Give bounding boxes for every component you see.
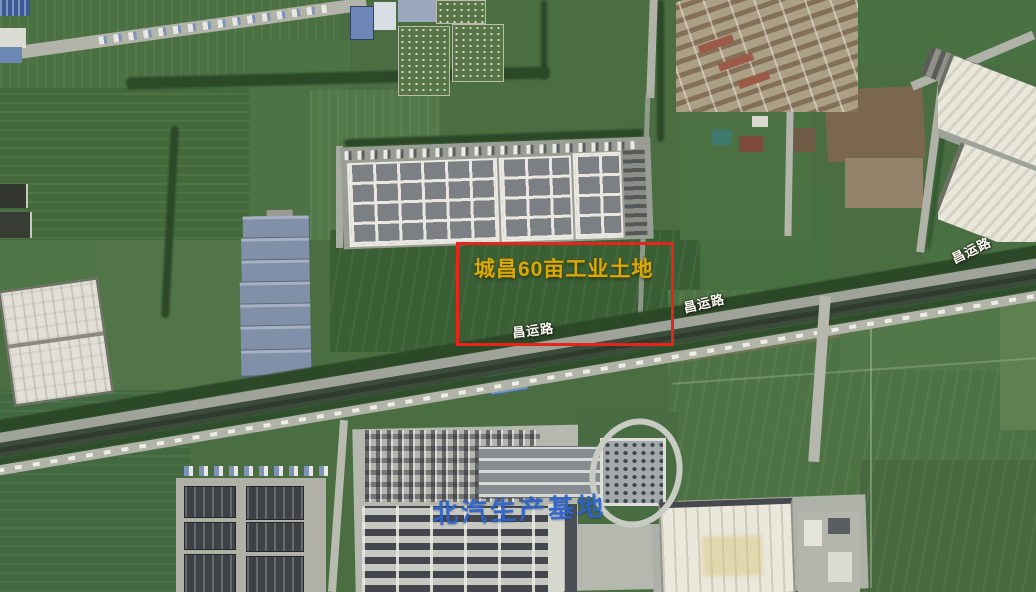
barn-roof [241, 237, 309, 261]
building [0, 28, 26, 48]
building [712, 130, 732, 145]
building [828, 518, 850, 534]
building [398, 0, 438, 22]
building [752, 116, 768, 127]
warehouse-roof [0, 278, 114, 407]
dark-shed [184, 486, 236, 518]
farmland-brown [845, 158, 923, 208]
field [860, 460, 1036, 592]
village-area [676, 0, 858, 112]
village-blocks [676, 0, 858, 112]
building [374, 2, 396, 30]
barn-roof [241, 325, 311, 351]
building [0, 212, 32, 238]
parcel-label: 城昌60亩工业土地 [474, 253, 653, 283]
dark-shed [246, 522, 304, 552]
factory-complex [340, 137, 653, 250]
building [828, 552, 852, 582]
building [0, 47, 22, 63]
roof-tint [702, 535, 763, 577]
building [804, 520, 822, 546]
barn-roof [240, 303, 310, 327]
orchard-plot [398, 26, 450, 96]
building [0, 184, 28, 208]
building [350, 6, 374, 40]
factory-roof-block [573, 152, 624, 240]
satellite-map[interactable]: 城昌60亩工业土地 昌运路 昌运路 昌运路 北汽生产基地 [0, 0, 1036, 592]
field-division-line [870, 300, 872, 588]
field [1000, 300, 1036, 430]
warehouse-cluster [938, 36, 1036, 242]
factory-roof-block [499, 155, 574, 241]
building [739, 136, 763, 152]
barn-roof [241, 259, 309, 283]
road [328, 420, 348, 592]
orchard-plot [436, 0, 486, 24]
factory-roof-block [347, 158, 500, 247]
orchard-plot [452, 24, 504, 82]
barn-roof [240, 281, 310, 305]
warehouse-roof [658, 498, 795, 592]
tree-line [657, 0, 664, 142]
dark-shed [246, 556, 304, 592]
tree-line [541, 0, 547, 80]
building-cluster [798, 512, 860, 592]
field [0, 88, 250, 248]
dark-shed [184, 554, 236, 592]
facility-label: 北汽生产基地 [431, 486, 606, 531]
field [95, 240, 255, 400]
parked-vehicles [184, 466, 332, 476]
solar-panel-roof [0, 0, 30, 16]
farmland-brown [793, 128, 815, 152]
dark-shed [184, 522, 236, 550]
barn-cluster [239, 209, 318, 376]
dark-shed [246, 486, 304, 520]
parking-strip [623, 149, 648, 236]
roof-ridge [8, 331, 104, 348]
barn-roof [243, 215, 309, 239]
